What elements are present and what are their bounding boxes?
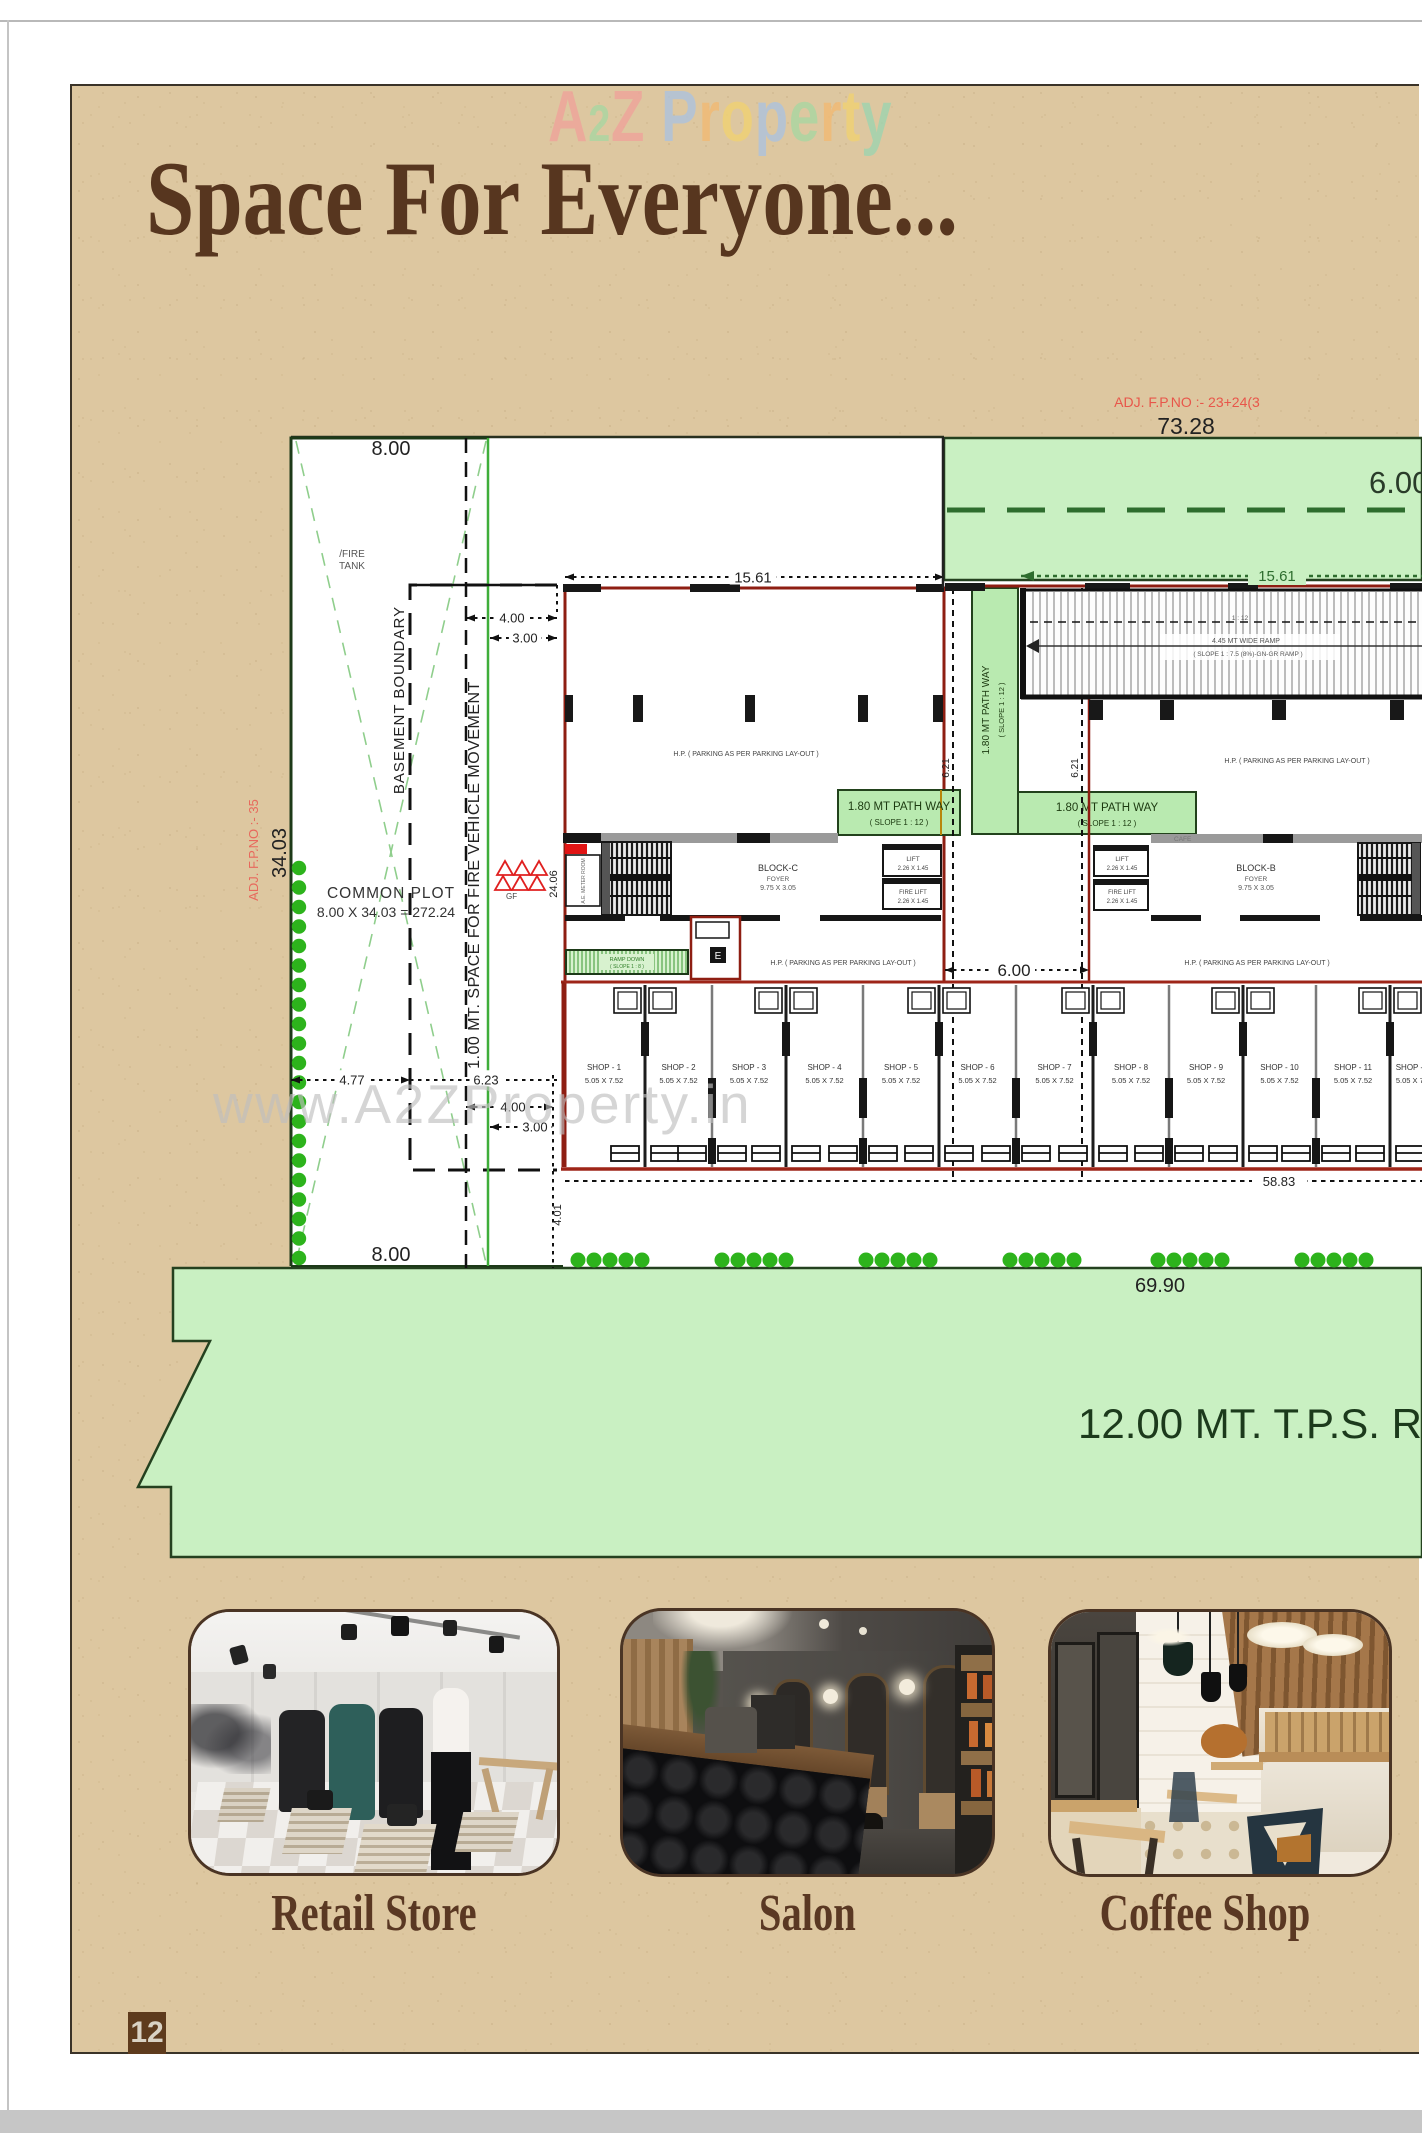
svg-text:SHOP - 12: SHOP - 12 <box>1396 1063 1422 1072</box>
svg-text:LIFT: LIFT <box>1115 856 1128 863</box>
svg-text:34.03: 34.03 <box>269 828 291 878</box>
svg-text:FOYER: FOYER <box>1245 876 1268 883</box>
svg-text:5.05 X 7.52: 5.05 X 7.52 <box>1334 1076 1372 1085</box>
svg-text:69.90: 69.90 <box>1135 1275 1185 1297</box>
svg-text:GF: GF <box>506 892 517 901</box>
svg-text:9.75 X 3.05: 9.75 X 3.05 <box>760 885 796 892</box>
svg-text:H.P. ( PARKING AS PER PARKING: H.P. ( PARKING AS PER PARKING LAY-OUT ) <box>673 751 818 758</box>
svg-text:6.21: 6.21 <box>941 758 952 778</box>
svg-text:SHOP - 8: SHOP - 8 <box>1114 1063 1149 1072</box>
svg-text:SHOP - 7: SHOP - 7 <box>1037 1063 1072 1072</box>
svg-text:BLOCK-B: BLOCK-B <box>1236 863 1276 873</box>
svg-text:58.83: 58.83 <box>1263 1174 1296 1189</box>
svg-text:8.00: 8.00 <box>372 1244 411 1266</box>
svg-text:ADJ. F.P.NO :- 23+24(3: ADJ. F.P.NO :- 23+24(3 <box>1114 394 1260 410</box>
svg-text:2.26 X 1.45: 2.26 X 1.45 <box>898 866 929 872</box>
svg-text:SHOP - 4: SHOP - 4 <box>807 1063 842 1072</box>
svg-text:( SLOPE 1 : 12 ): ( SLOPE 1 : 12 ) <box>870 818 929 827</box>
svg-text:COMMON PLOT: COMMON PLOT <box>327 885 455 902</box>
svg-text:2.26 X 1.45: 2.26 X 1.45 <box>898 899 929 905</box>
svg-text:BLOCK-C: BLOCK-C <box>758 863 799 873</box>
svg-text:3.00: 3.00 <box>512 631 537 646</box>
svg-text:( SLOPE 1 : 12 ): ( SLOPE 1 : 12 ) <box>1078 819 1137 828</box>
svg-text:2.26 X 1.45: 2.26 X 1.45 <box>1107 866 1138 872</box>
svg-text:( SLOPE 1 : 8 ): ( SLOPE 1 : 8 ) <box>610 964 644 970</box>
svg-text:RAMP DOWN: RAMP DOWN <box>610 957 645 963</box>
svg-text:12.00 MT. T.P.S. ROAD: 12.00 MT. T.P.S. ROAD <box>1078 1400 1422 1447</box>
svg-text:A.E. METER ROOM: A.E. METER ROOM <box>581 858 587 903</box>
svg-text:FIRE LIFT: FIRE LIFT <box>899 890 927 896</box>
svg-text:E: E <box>715 951 722 962</box>
svg-text:1 : 12: 1 : 12 <box>1232 615 1249 622</box>
svg-text:CAFE: CAFE <box>1174 836 1192 843</box>
svg-text:1.80 MT PATH WAY: 1.80 MT PATH WAY <box>981 665 992 754</box>
svg-text:H.P. ( PARKING AS PER PARKING: H.P. ( PARKING AS PER PARKING LAY-OUT ) <box>1224 758 1369 765</box>
svg-text:SHOP - 5: SHOP - 5 <box>884 1063 919 1072</box>
svg-text:SHOP - 3: SHOP - 3 <box>732 1063 767 1072</box>
svg-text:H.P. ( PARKING AS PER PARKING: H.P. ( PARKING AS PER PARKING LAY-OUT ) <box>1184 960 1329 967</box>
svg-text:SHOP - 9: SHOP - 9 <box>1189 1063 1224 1072</box>
svg-text:73.28: 73.28 <box>1157 413 1215 439</box>
svg-text:2.26 X 1.45: 2.26 X 1.45 <box>1107 899 1138 905</box>
svg-text:H.P. ( PARKING AS PER PARKING: H.P. ( PARKING AS PER PARKING LAY-OUT ) <box>770 960 915 967</box>
svg-text:24.06: 24.06 <box>548 870 560 898</box>
svg-text:6.00: 6.00 <box>997 961 1030 980</box>
svg-text:15.61: 15.61 <box>1258 568 1296 585</box>
svg-text:9.75 X 3.05: 9.75 X 3.05 <box>1238 885 1274 892</box>
svg-text:5.05 X 7.52: 5.05 X 7.52 <box>882 1076 920 1085</box>
svg-text:5.05 X 7.52: 5.05 X 7.52 <box>805 1076 843 1085</box>
svg-text:( SLOPE 1 : 12 ): ( SLOPE 1 : 12 ) <box>997 682 1006 738</box>
svg-text:SHOP - 2: SHOP - 2 <box>661 1063 696 1072</box>
svg-text:/FIRE: /FIRE <box>339 549 365 560</box>
svg-text:5.05 X 7.52: 5.05 X 7.52 <box>1112 1076 1150 1085</box>
svg-text:FOYER: FOYER <box>767 876 790 883</box>
svg-text:5.05 X 7.52: 5.05 X 7.52 <box>1260 1076 1298 1085</box>
svg-text:4.01: 4.01 <box>552 1204 564 1225</box>
svg-text:15.61: 15.61 <box>734 569 772 586</box>
svg-text:FIRE LIFT: FIRE LIFT <box>1108 890 1136 896</box>
svg-text:SHOP - 6: SHOP - 6 <box>960 1063 995 1072</box>
svg-text:TANK: TANK <box>339 561 365 572</box>
svg-text:5.05 X 7.52: 5.05 X 7.52 <box>1187 1076 1225 1085</box>
svg-text:1.80 MT PATH WAY: 1.80 MT PATH WAY <box>1056 802 1159 814</box>
svg-text:1.00 MT. SPACE FOR FIRE VEHICL: 1.00 MT. SPACE FOR FIRE VEHICLE MOVEMENT <box>466 681 483 1069</box>
svg-text:5.05 X 7.52: 5.05 X 7.52 <box>958 1076 996 1085</box>
svg-text:4.45 MT WIDE RAMP: 4.45 MT WIDE RAMP <box>1212 638 1280 645</box>
svg-text:5.05 X 7.52: 5.05 X 7.52 <box>1396 1076 1422 1085</box>
svg-text:BASEMENT BOUNDARY: BASEMENT BOUNDARY <box>391 606 408 794</box>
svg-text:8.00 X 34.03 = 272.24: 8.00 X 34.03 = 272.24 <box>317 904 455 920</box>
svg-text:( SLOPE 1 : 7.5 (8%)-GN-GR RAM: ( SLOPE 1 : 7.5 (8%)-GN-GR RAMP ) <box>1193 651 1302 658</box>
svg-text:5.05 X 7.52: 5.05 X 7.52 <box>1035 1076 1073 1085</box>
svg-text:ADJ. F.P.NO :- 35: ADJ. F.P.NO :- 35 <box>246 799 261 901</box>
svg-text:SHOP - 11: SHOP - 11 <box>1334 1063 1372 1072</box>
svg-text:LIFT: LIFT <box>906 856 919 863</box>
svg-text:1.80 MT PATH WAY: 1.80 MT PATH WAY <box>848 801 951 813</box>
svg-text:6.21: 6.21 <box>1070 758 1081 778</box>
svg-text:6.00 M: 6.00 M <box>1369 465 1422 500</box>
svg-text:4.00: 4.00 <box>499 611 524 626</box>
svg-text:SHOP - 10: SHOP - 10 <box>1260 1063 1299 1072</box>
svg-text:8.00: 8.00 <box>372 438 411 460</box>
svg-text:SHOP - 1: SHOP - 1 <box>587 1063 622 1072</box>
